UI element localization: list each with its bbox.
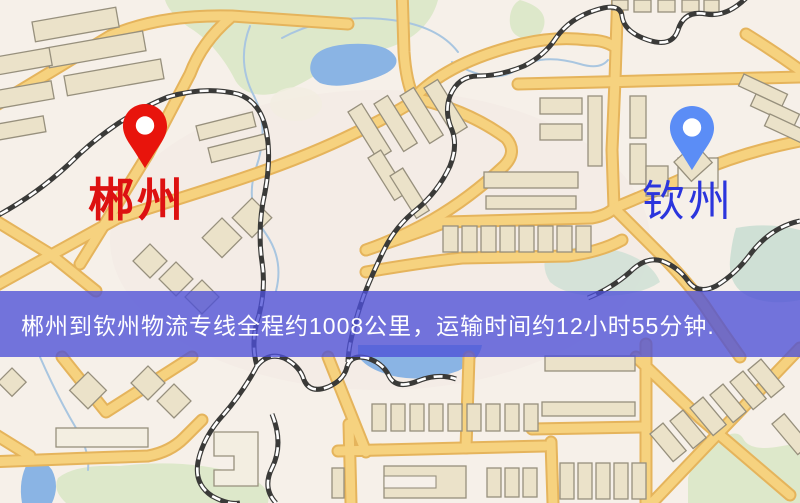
destination-city-label: 钦州	[642, 181, 734, 224]
route-info-text: 郴州到钦州物流专线全程约1008公里，运输时间约12小时55分钟.	[0, 307, 715, 341]
map-marker-icon	[669, 106, 715, 171]
map-canvas[interactable]: 郴州 钦州 郴州到钦州物流专线全程约1008公里，运输时间约12小时55分钟.	[0, 0, 800, 503]
route-info-banner: 郴州到钦州物流专线全程约1008公里，运输时间约12小时55分钟.	[0, 291, 800, 357]
map-marker-icon	[122, 104, 168, 169]
origin-city-label: 郴州	[88, 177, 186, 223]
destination-pin[interactable]	[669, 106, 715, 171]
origin-pin[interactable]	[122, 104, 168, 169]
map-graphic	[0, 0, 800, 503]
